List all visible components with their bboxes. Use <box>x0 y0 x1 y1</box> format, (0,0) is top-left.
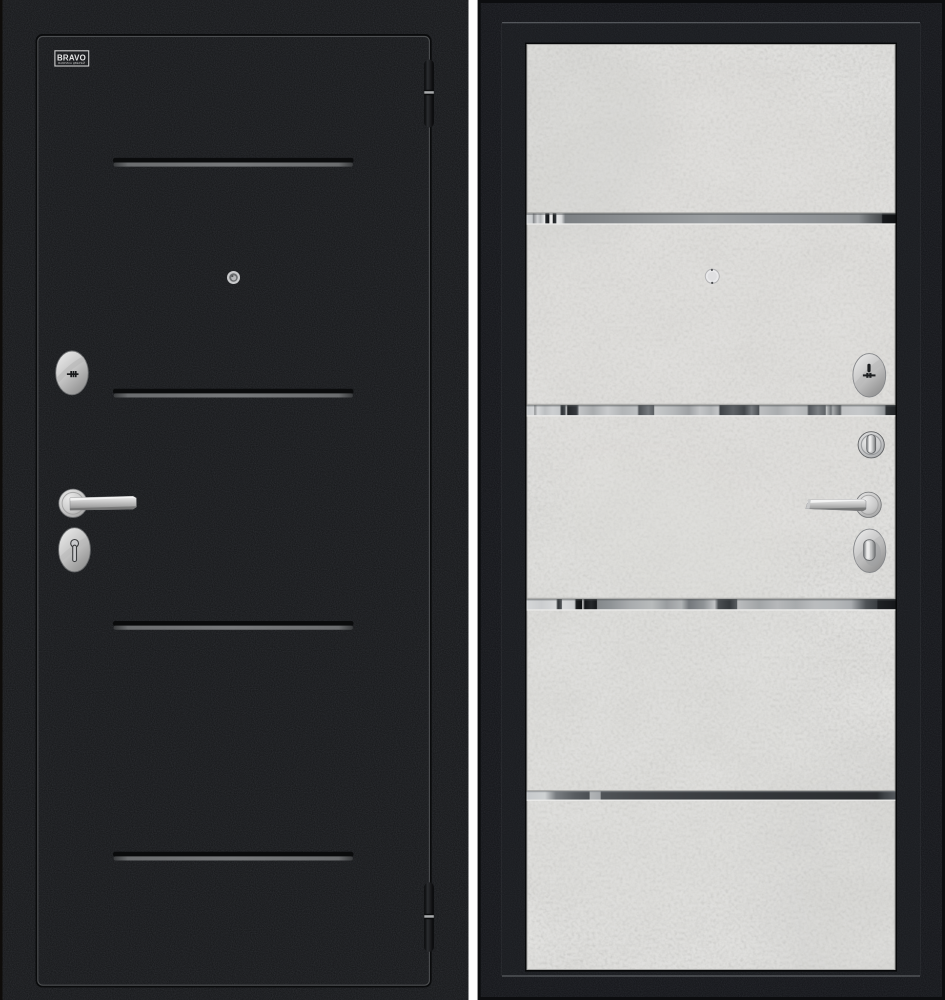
svg-text:ФАБРИКА ДВЕРЕЙ: ФАБРИКА ДВЕРЕЙ <box>58 61 85 65</box>
